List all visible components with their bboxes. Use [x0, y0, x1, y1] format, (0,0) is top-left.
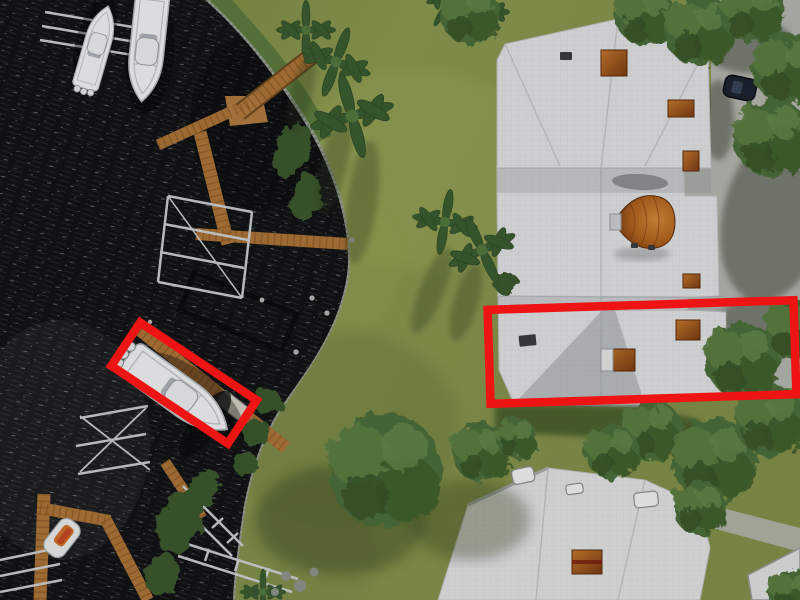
- aerial-photo-stage: Top-down aerial photo of a waterfront co…: [0, 0, 800, 600]
- aerial-photo: Top-down aerial photo of a waterfront co…: [0, 0, 800, 600]
